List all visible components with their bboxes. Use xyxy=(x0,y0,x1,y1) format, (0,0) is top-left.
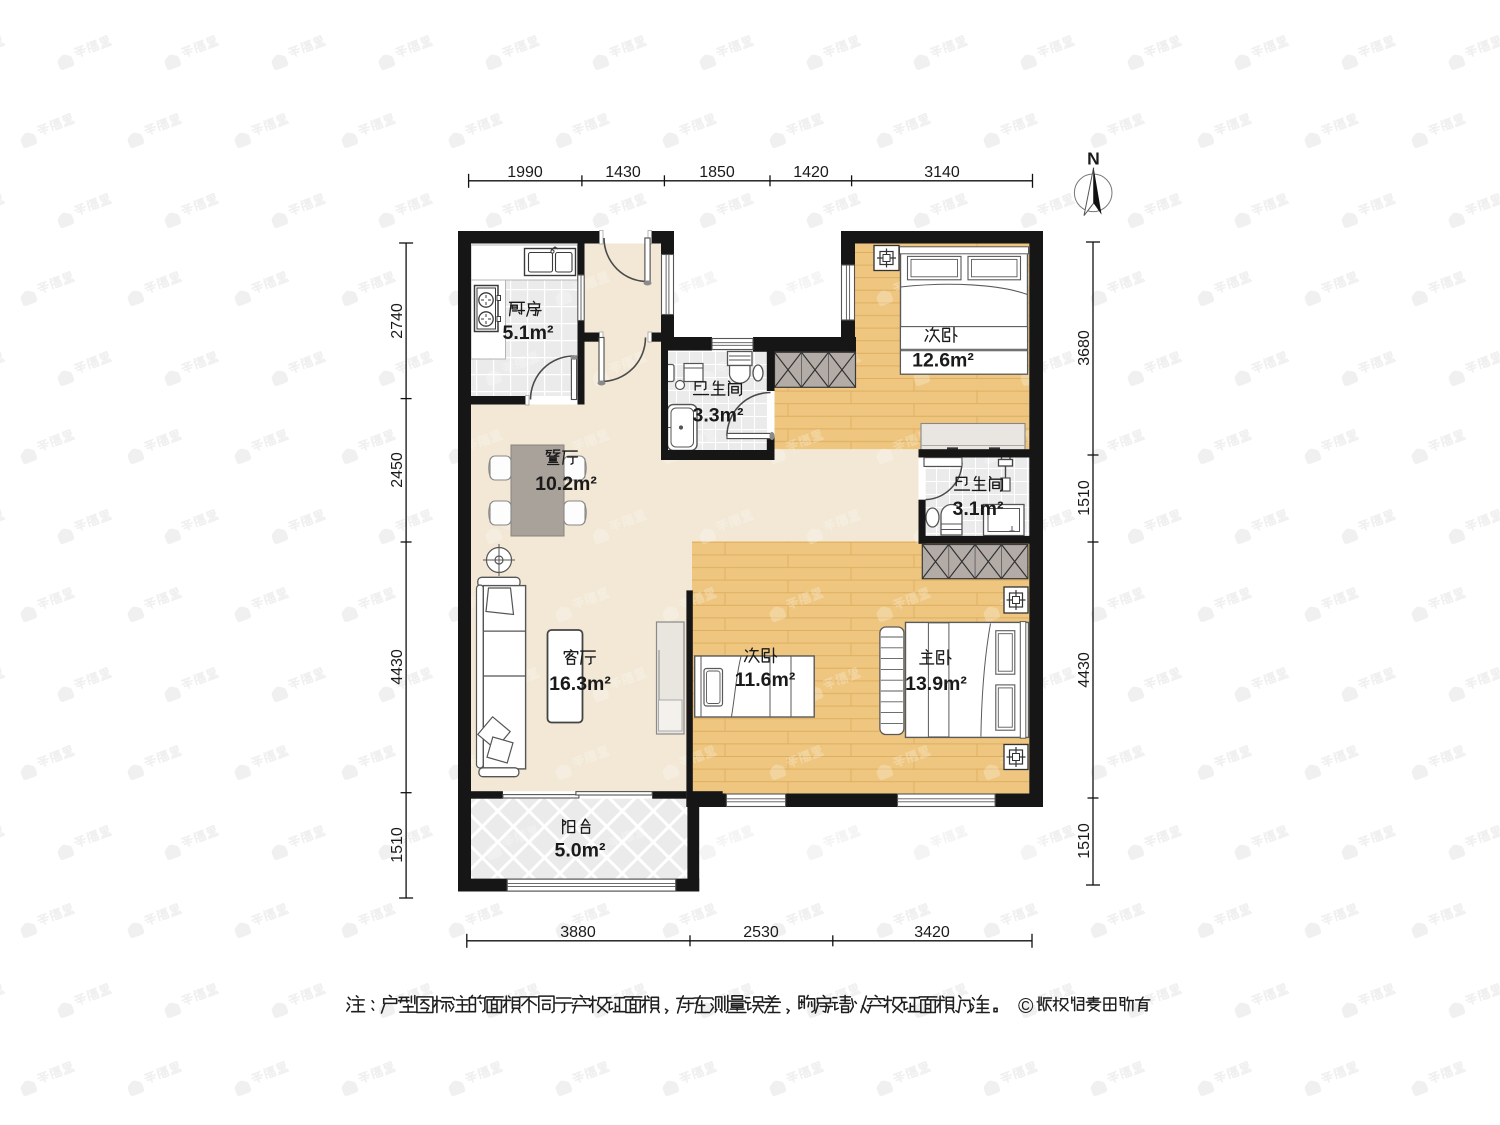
svg-text:3420: 3420 xyxy=(914,924,950,941)
svg-text:10.2m²: 10.2m² xyxy=(535,473,597,495)
svg-text:3680: 3680 xyxy=(1076,330,1093,366)
svg-text:2450: 2450 xyxy=(389,452,406,488)
svg-text:N: N xyxy=(1087,149,1100,169)
svg-text:1510: 1510 xyxy=(1076,480,1093,516)
svg-text:3.1m²: 3.1m² xyxy=(953,498,1004,520)
svg-text:©: © xyxy=(1018,995,1034,1018)
svg-text:16.3m²: 16.3m² xyxy=(549,673,611,695)
svg-text:4430: 4430 xyxy=(389,649,406,685)
svg-text:1510: 1510 xyxy=(1076,823,1093,859)
svg-text:3140: 3140 xyxy=(924,164,960,181)
svg-text:1420: 1420 xyxy=(793,164,829,181)
svg-text:5.0m²: 5.0m² xyxy=(555,840,606,862)
svg-text:4430: 4430 xyxy=(1076,652,1093,688)
svg-text:3880: 3880 xyxy=(560,924,596,941)
svg-text:2740: 2740 xyxy=(389,303,406,339)
svg-text:1990: 1990 xyxy=(507,164,543,181)
svg-text:3.3m²: 3.3m² xyxy=(693,405,744,427)
svg-text:2530: 2530 xyxy=(743,924,779,941)
svg-text:1510: 1510 xyxy=(389,827,406,863)
svg-text:13.9m²: 13.9m² xyxy=(905,673,967,695)
svg-text:1430: 1430 xyxy=(605,164,641,181)
svg-text:11.6m²: 11.6m² xyxy=(735,669,796,691)
svg-text:5.1m²: 5.1m² xyxy=(503,322,554,344)
svg-text:1850: 1850 xyxy=(699,164,735,181)
svg-text:12.6m²: 12.6m² xyxy=(912,350,974,372)
